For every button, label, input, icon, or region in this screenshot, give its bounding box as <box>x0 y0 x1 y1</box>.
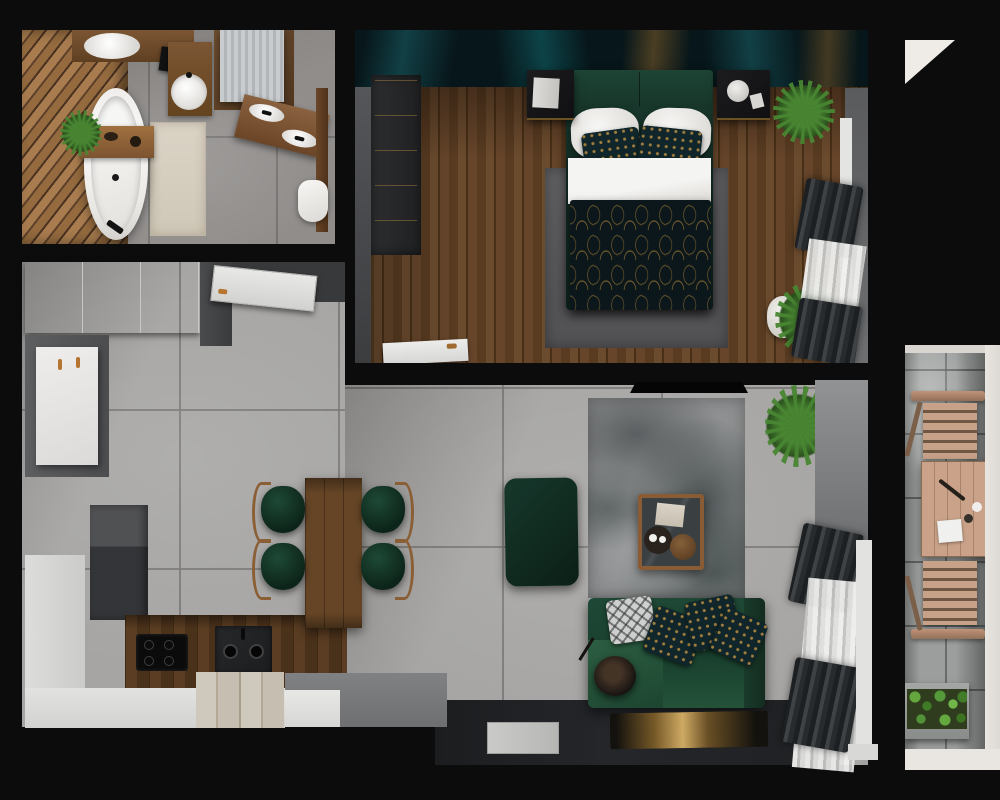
bathroom-plant <box>60 110 102 156</box>
induction-cooktop <box>136 634 188 671</box>
floor-plan-canvas <box>0 0 1000 800</box>
floor-lamp <box>594 656 636 696</box>
bedroom-plant-top <box>773 80 835 144</box>
planter-box <box>905 683 969 739</box>
green-pouf <box>504 477 579 586</box>
balcony-table <box>921 461 989 557</box>
tall-white-cabinet <box>36 347 98 465</box>
bathtub-basin <box>91 96 141 232</box>
dining-table <box>305 478 362 628</box>
bedroom-left-wall <box>355 87 371 363</box>
chair-backrest <box>911 629 985 639</box>
doormat <box>487 722 559 754</box>
bedroom-curtain-bottom <box>791 297 864 363</box>
dining-chair-1 <box>261 486 305 533</box>
paper-note <box>749 93 764 109</box>
balcony-chair-bottom <box>911 555 985 647</box>
right-wall-panel <box>815 380 868 545</box>
table-knife <box>938 479 966 502</box>
gray-kitchen-cabinets <box>90 505 148 620</box>
table-plate <box>964 514 973 523</box>
round-washbasin <box>171 74 207 110</box>
bedroom-wardrobe <box>371 75 421 255</box>
table-napkin <box>937 519 963 543</box>
coffee-table-book <box>655 503 685 528</box>
table-cup <box>972 502 982 512</box>
balcony-frame-right <box>985 345 1000 770</box>
washing-machine <box>220 30 284 102</box>
balcony-door-frame <box>856 540 872 760</box>
basin-faucet-icon <box>186 72 192 78</box>
entry-door-handle <box>218 289 227 295</box>
dark-gold-runner-rug <box>610 711 769 750</box>
cutting-boards <box>196 672 284 728</box>
kitchen-sink <box>215 626 272 674</box>
peninsula-white-front <box>285 690 340 727</box>
bathroom <box>22 30 335 244</box>
cabinet-handle-2 <box>76 357 80 368</box>
wall-tv <box>630 382 748 393</box>
balcony-frame-top <box>905 345 987 353</box>
balcony-chair-top <box>911 391 985 461</box>
bedroom <box>355 30 868 363</box>
sink-strainer-1 <box>223 644 238 659</box>
door-handle <box>447 343 457 349</box>
nightstand-right <box>717 70 770 120</box>
planter-plants <box>907 689 967 729</box>
bathroom-rug <box>150 122 206 236</box>
oval-sink-1 <box>247 101 286 125</box>
dining-chair-2 <box>261 543 305 590</box>
wardrobe-handles <box>375 75 417 255</box>
balcony-corner-wedge <box>905 40 955 84</box>
white-counter-left <box>25 555 85 690</box>
headboard-seam <box>639 72 640 106</box>
bathtub-drain <box>112 174 119 181</box>
balcony-frame-bottom <box>905 749 1000 770</box>
kitchen-faucet <box>241 628 245 640</box>
chair-seat-slats <box>923 561 977 625</box>
dining-chair-3 <box>361 486 405 533</box>
coffee-table-tray <box>670 534 696 560</box>
dining-chair-4 <box>361 543 405 590</box>
freestanding-bathtub <box>84 88 148 240</box>
folded-white-sheet <box>568 158 711 204</box>
caddy-dish <box>104 132 118 141</box>
hall-white-wardrobe <box>25 262 200 333</box>
toilet <box>298 180 328 222</box>
top-washbasin <box>84 33 140 59</box>
patterned-duvet <box>570 200 711 310</box>
bedroom-door <box>382 339 468 363</box>
balcony <box>905 345 1000 770</box>
coffee-table-plate <box>644 526 672 554</box>
chair-seat-slats <box>923 403 977 459</box>
cabinet-handle-1 <box>58 359 62 370</box>
oval-sink-2 <box>280 126 319 150</box>
table-lamp <box>727 80 749 102</box>
sink-strainer-2 <box>249 644 264 659</box>
balcony-door-sill <box>848 744 878 760</box>
caddy-cup <box>130 136 141 147</box>
coffee-table <box>638 494 704 570</box>
chair-backrest <box>911 391 985 401</box>
nightstand-left <box>527 70 574 120</box>
book-stack <box>532 77 560 108</box>
